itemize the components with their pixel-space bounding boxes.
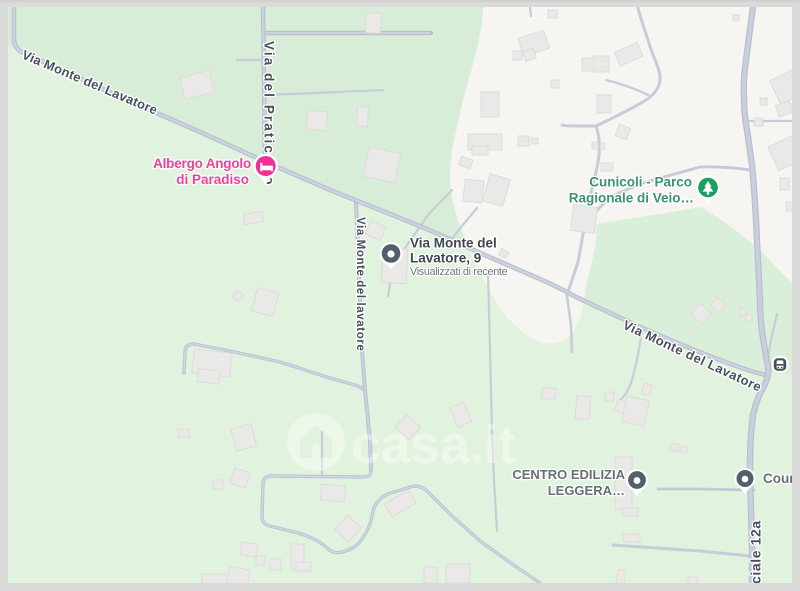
svg-text:Ragionale di Veio…: Ragionale di Veio… — [569, 191, 694, 206]
svg-text:Via Monte del lavatore: Via Monte del lavatore — [354, 217, 366, 351]
svg-text:Via Monte del: Via Monte del — [410, 236, 497, 251]
svg-text:Visualizzati di recente: Visualizzati di recente — [410, 266, 508, 278]
svg-text:Cunicoli - Parco: Cunicoli - Parco — [589, 175, 692, 190]
svg-text:di Paradiso: di Paradiso — [176, 172, 249, 187]
svg-text:vinciale 12a: vinciale 12a — [748, 520, 764, 591]
svg-text:Albergo Angolo: Albergo Angolo — [153, 156, 251, 171]
svg-text:casa.it: casa.it — [351, 415, 516, 475]
svg-text:CENTRO EDILIZIA: CENTRO EDILIZIA — [512, 467, 625, 482]
svg-text:LEGGERA…: LEGGERA… — [548, 483, 625, 498]
svg-text:Lavatore, 9: Lavatore, 9 — [410, 251, 481, 266]
svg-text:Cour: Cour — [763, 471, 795, 486]
